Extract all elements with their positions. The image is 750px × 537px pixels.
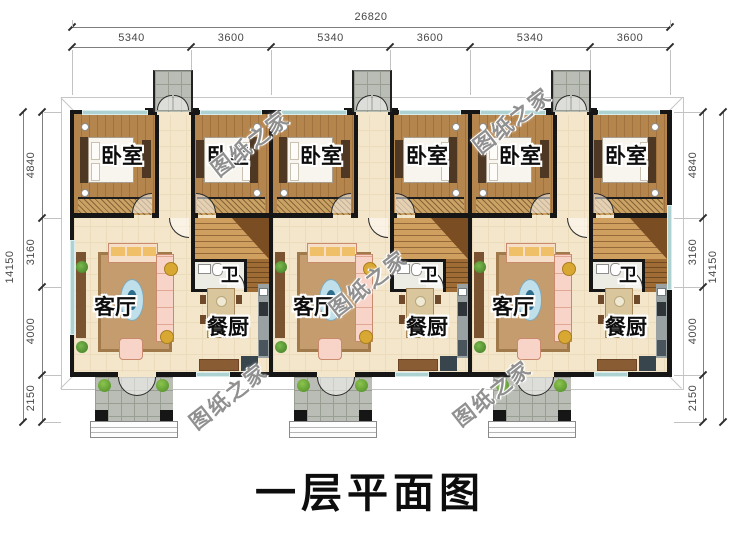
watermark-text: 图纸之家: [447, 353, 538, 433]
watermark-text: 图纸之家: [467, 80, 558, 160]
watermark-text: 图纸之家: [323, 243, 414, 323]
watermark-text: 图纸之家: [205, 103, 296, 183]
plan-title: 一层平面图: [60, 471, 680, 515]
floor-plan-canvas: 2682053403600534036005340360014150484031…: [0, 0, 750, 537]
watermark-text: 图纸之家: [183, 356, 274, 436]
watermarks: 图纸之家图纸之家图纸之家图纸之家图纸之家: [0, 0, 750, 537]
